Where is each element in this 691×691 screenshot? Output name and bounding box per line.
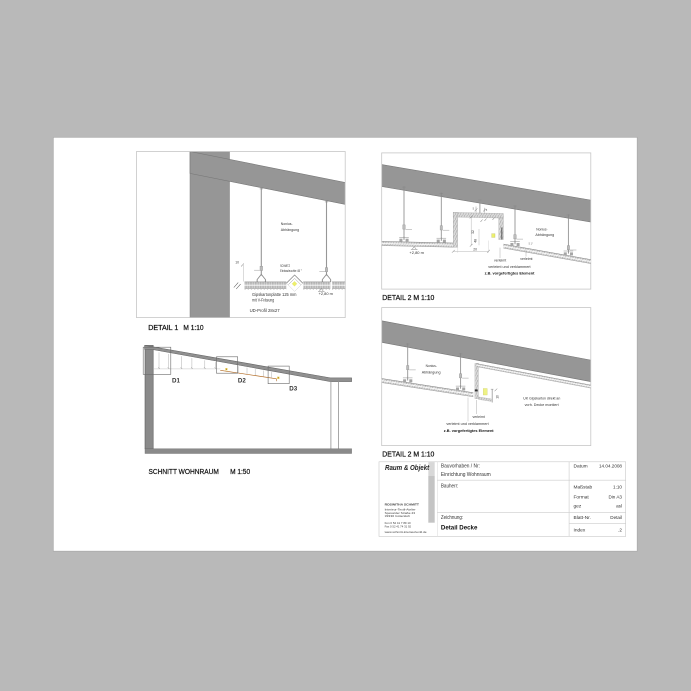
svg-text:asl: asl bbox=[616, 504, 622, 509]
svg-text:Index: Index bbox=[574, 528, 586, 534]
svg-text:32: 32 bbox=[471, 230, 475, 234]
svg-text:Bauherr:: Bauherr: bbox=[441, 484, 459, 490]
svg-text:Einrichtung Wohnraum: Einrichtung Wohnraum bbox=[441, 472, 491, 478]
svg-text:Abhängung: Abhängung bbox=[422, 370, 441, 375]
svg-text:Nonius-: Nonius- bbox=[536, 227, 548, 232]
svg-text:D2: D2 bbox=[238, 377, 246, 384]
svg-text:Nonius-: Nonius- bbox=[426, 363, 438, 368]
svg-text:Blatt-Nr.: Blatt-Nr. bbox=[574, 515, 591, 521]
svg-text:z.B. vorgefertigtes Element: z.B. vorgefertigtes Element bbox=[444, 428, 494, 433]
svg-text:verleimt: verleimt bbox=[494, 257, 507, 262]
svg-text:mit V-Fräsung: mit V-Fräsung bbox=[252, 298, 275, 303]
svg-text:48: 48 bbox=[473, 239, 477, 243]
svg-text:10: 10 bbox=[495, 395, 499, 399]
svg-text:Nonius-: Nonius- bbox=[281, 221, 293, 226]
svg-text:D1: D1 bbox=[172, 377, 180, 384]
svg-text:+2,80 m: +2,80 m bbox=[409, 250, 424, 255]
svg-text:M 1:10: M 1:10 bbox=[183, 323, 203, 332]
svg-text:14.04.2008: 14.04.2008 bbox=[599, 464, 622, 469]
svg-text:D3: D3 bbox=[289, 385, 297, 392]
svg-text:gez: gez bbox=[574, 505, 582, 510]
svg-text:SCHNITT WOHNRAUM: SCHNITT WOHNRAUM bbox=[149, 467, 219, 476]
svg-text:Bauvorhaben / Nr:: Bauvorhaben / Nr: bbox=[441, 464, 480, 470]
svg-text:Einbauleuchte 45 °: Einbauleuchte 45 ° bbox=[280, 268, 302, 273]
svg-text:Abhängung: Abhängung bbox=[281, 227, 299, 232]
svg-text:UD-Profil 28x27: UD-Profil 28x27 bbox=[250, 308, 281, 313]
svg-text:20: 20 bbox=[473, 247, 477, 251]
svg-text:Abhängung: Abhängung bbox=[535, 232, 554, 237]
svg-text:verleimt: verleimt bbox=[520, 256, 533, 261]
svg-text:M 1:50: M 1:50 bbox=[230, 467, 250, 476]
svg-text:verleimt und verklammert: verleimt und verklammert bbox=[446, 421, 489, 426]
svg-text:Din A3: Din A3 bbox=[608, 494, 622, 499]
svg-text:Datum: Datum bbox=[574, 464, 588, 470]
svg-text:verleimt: verleimt bbox=[473, 414, 486, 419]
svg-text:verleimt und verklammert: verleimt und verklammert bbox=[488, 264, 531, 269]
svg-text:Format: Format bbox=[574, 494, 590, 500]
svg-text:.2: .2 bbox=[618, 528, 622, 533]
svg-text:Detail: Detail bbox=[610, 515, 622, 520]
svg-text:vorh. Decke montiert: vorh. Decke montiert bbox=[525, 402, 560, 407]
svg-text:Maßstab: Maßstab bbox=[574, 485, 593, 491]
svg-text:z.B. vorgefertigtes Element: z.B. vorgefertigtes Element bbox=[485, 271, 535, 276]
svg-text:Gipskartonplatte 125 mm: Gipskartonplatte 125 mm bbox=[252, 292, 297, 297]
svg-text:1:10: 1:10 bbox=[613, 485, 622, 490]
svg-text:UK Gipskarton direkt an: UK Gipskarton direkt an bbox=[523, 396, 560, 401]
svg-text:5 1°: 5 1° bbox=[529, 243, 533, 246]
svg-text:Zeichnung:: Zeichnung: bbox=[441, 515, 463, 521]
svg-text:www.schmitt-interieurtextil.de: www.schmitt-interieurtextil.de bbox=[385, 530, 428, 534]
svg-text:+2,80 m: +2,80 m bbox=[319, 291, 334, 296]
svg-text:Detail Decke: Detail Decke bbox=[441, 524, 478, 531]
svg-text:DETAIL 2 M 1:10: DETAIL 2 M 1:10 bbox=[382, 450, 434, 459]
svg-text:ROSWITHA SCHMITT: ROSWITHA SCHMITT bbox=[385, 503, 420, 507]
svg-text:Raum & Objekt: Raum & Objekt bbox=[385, 463, 430, 472]
svg-text:10: 10 bbox=[235, 260, 239, 264]
svg-text:Fax 0 52 41 74 31 92: Fax 0 52 41 74 31 92 bbox=[385, 524, 412, 528]
svg-text:DETAIL 2 M 1:10: DETAIL 2 M 1:10 bbox=[382, 293, 434, 302]
svg-text:33330 Gütersloh: 33330 Gütersloh bbox=[385, 514, 411, 518]
svg-text:DETAIL 1: DETAIL 1 bbox=[148, 323, 178, 332]
